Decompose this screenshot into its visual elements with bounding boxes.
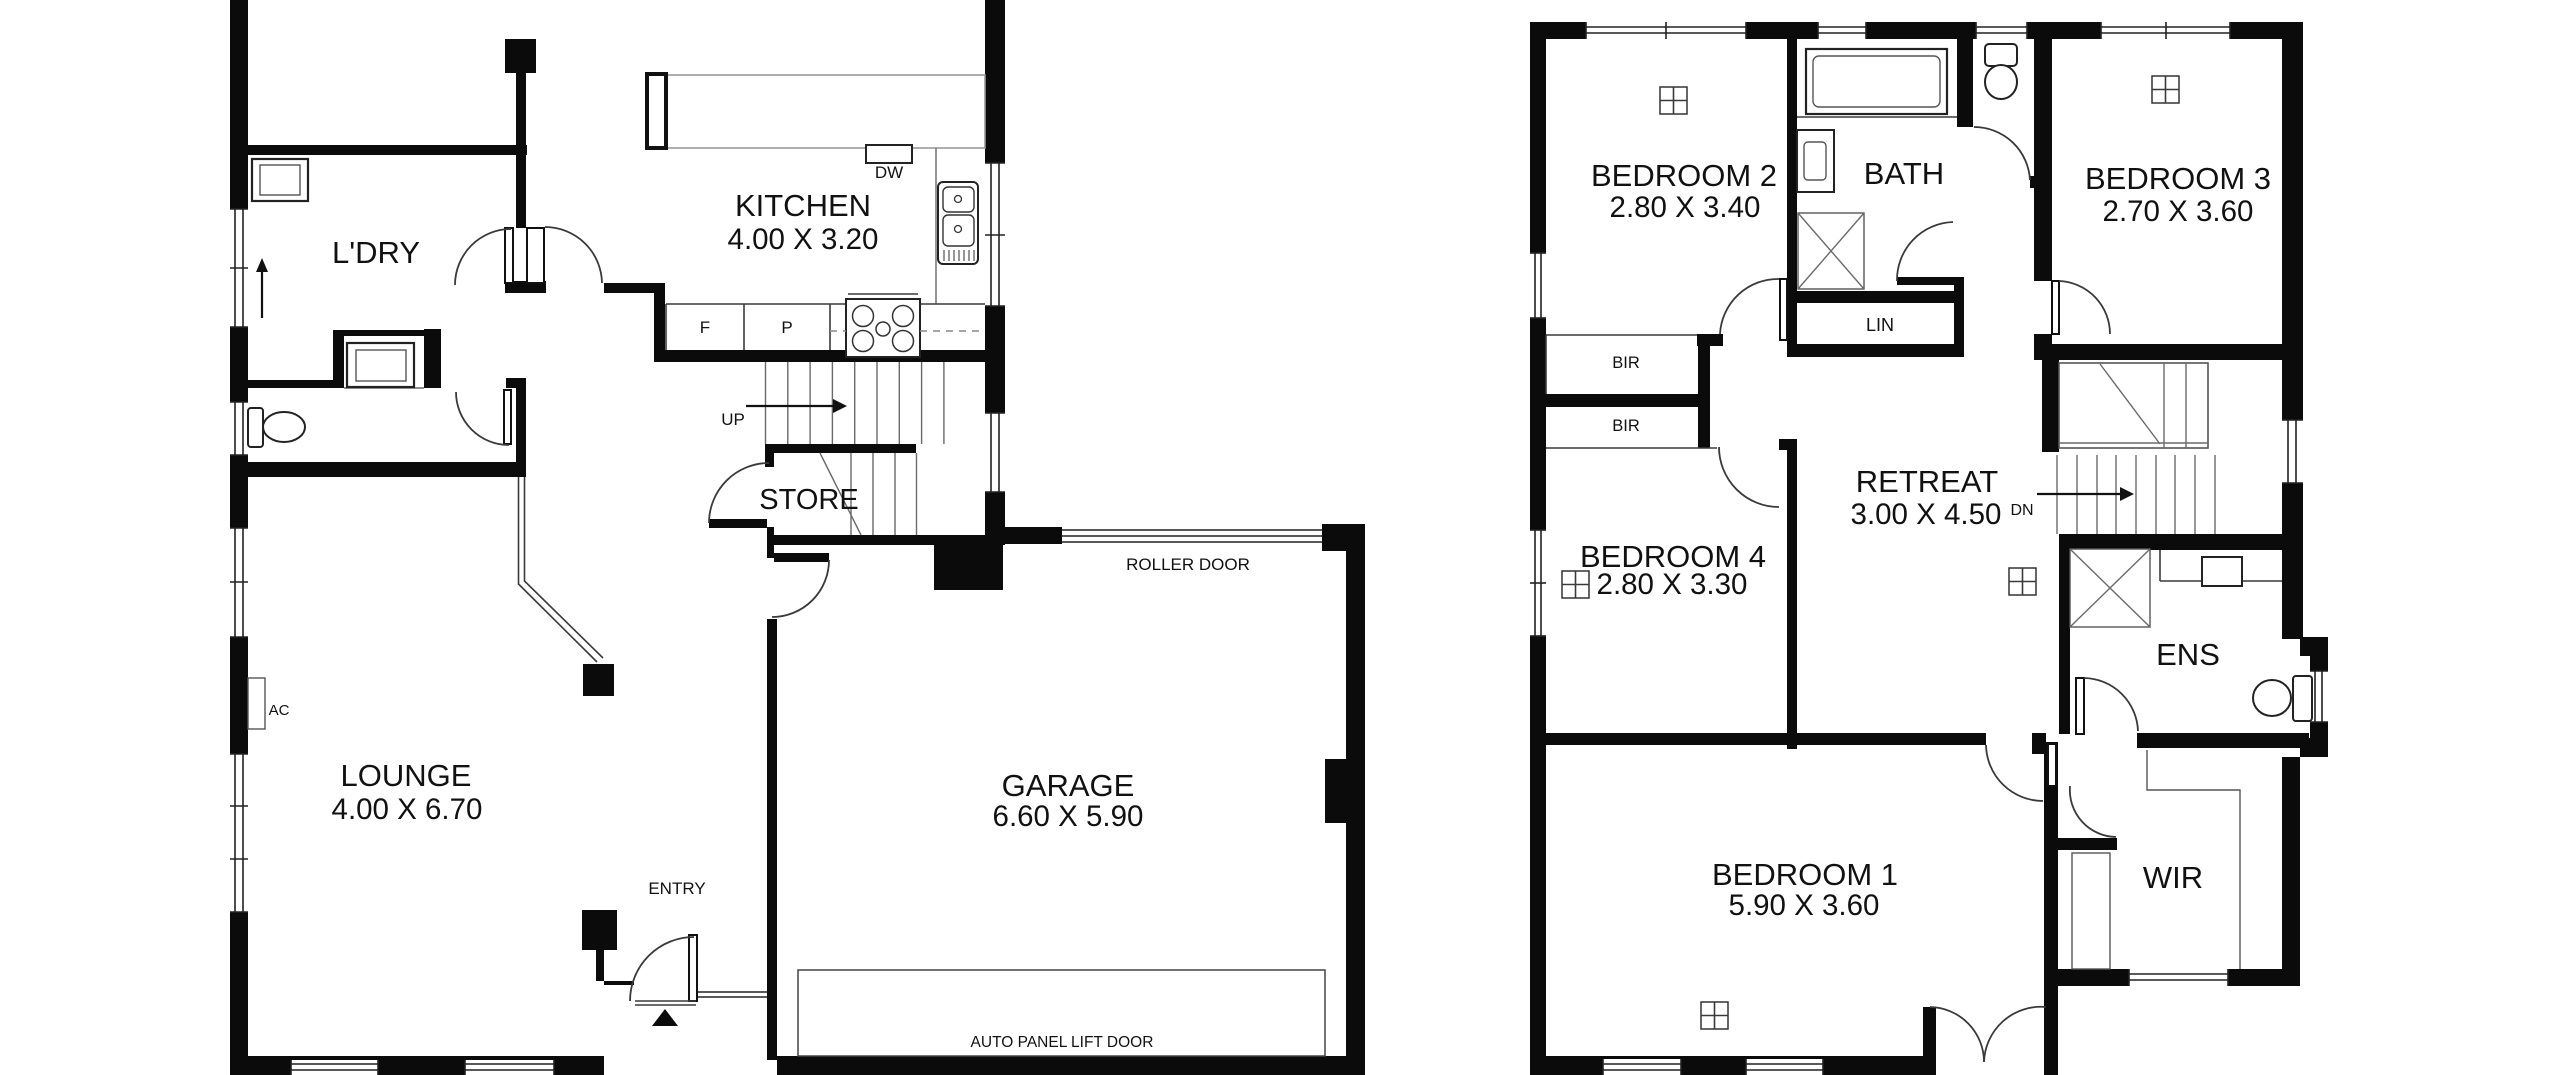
svg-text:BEDROOM 2: BEDROOM 2 bbox=[1591, 158, 1777, 193]
svg-text:BEDROOM 1: BEDROOM 1 bbox=[1712, 857, 1898, 892]
svg-text:ENTRY: ENTRY bbox=[648, 879, 705, 898]
svg-text:ENS: ENS bbox=[2156, 637, 2220, 672]
svg-text:F: F bbox=[700, 318, 710, 337]
svg-text:6.60 X 5.90: 6.60 X 5.90 bbox=[993, 800, 1144, 833]
svg-text:STORE: STORE bbox=[759, 484, 858, 516]
svg-text:AC: AC bbox=[269, 702, 290, 719]
svg-text:AUTO PANEL LIFT DOOR: AUTO PANEL LIFT DOOR bbox=[971, 1034, 1154, 1051]
svg-text:2.70 X 3.60: 2.70 X 3.60 bbox=[2103, 195, 2254, 228]
svg-text:BIR: BIR bbox=[1612, 354, 1640, 372]
svg-text:4.00 X 3.20: 4.00 X 3.20 bbox=[728, 223, 879, 256]
svg-text:L'DRY: L'DRY bbox=[332, 235, 420, 270]
svg-text:UP: UP bbox=[721, 410, 745, 429]
svg-text:BIR: BIR bbox=[1612, 417, 1640, 435]
svg-text:P: P bbox=[781, 318, 792, 337]
svg-text:RETREAT: RETREAT bbox=[1856, 464, 1998, 499]
svg-text:BEDROOM 3: BEDROOM 3 bbox=[2085, 161, 2271, 196]
svg-text:2.80 X 3.30: 2.80 X 3.30 bbox=[1597, 568, 1748, 601]
svg-text:4.00 X 6.70: 4.00 X 6.70 bbox=[332, 793, 483, 826]
svg-text:LIN: LIN bbox=[1866, 315, 1894, 335]
svg-text:ROLLER DOOR: ROLLER DOOR bbox=[1126, 555, 1250, 574]
svg-text:DN: DN bbox=[2010, 502, 2033, 519]
svg-text:5.90 X 3.60: 5.90 X 3.60 bbox=[1729, 889, 1880, 922]
svg-text:LOUNGE: LOUNGE bbox=[341, 758, 472, 793]
svg-text:3.00 X 4.50: 3.00 X 4.50 bbox=[1851, 498, 2002, 531]
svg-text:2.80 X 3.40: 2.80 X 3.40 bbox=[1610, 191, 1761, 224]
svg-text:BATH: BATH bbox=[1864, 156, 1944, 191]
svg-text:DW: DW bbox=[875, 163, 903, 182]
svg-text:WIR: WIR bbox=[2143, 860, 2203, 895]
svg-text:GARAGE: GARAGE bbox=[1002, 768, 1135, 803]
svg-text:KITCHEN: KITCHEN bbox=[735, 188, 871, 223]
